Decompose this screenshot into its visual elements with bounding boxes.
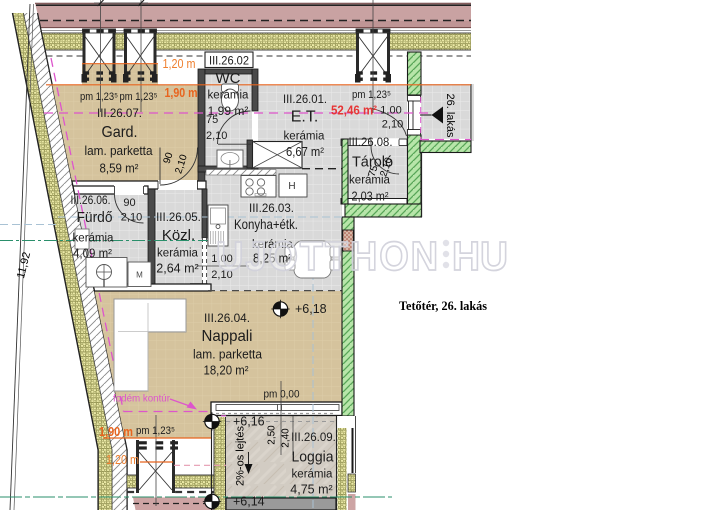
svg-text:1,90 m: 1,90 m bbox=[165, 86, 198, 100]
svg-text:III.26.02: III.26.02 bbox=[209, 56, 249, 68]
svg-text:1,20 m: 1,20 m bbox=[163, 57, 196, 71]
svg-text:lam. parketta: lam. parketta bbox=[85, 144, 153, 158]
svg-text:4,75 m²: 4,75 m² bbox=[290, 483, 332, 497]
svg-text:pm 1,23⁵: pm 1,23⁵ bbox=[136, 425, 175, 437]
svg-text:pm 1,23⁵: pm 1,23⁵ bbox=[80, 91, 118, 103]
svg-text:III.26.09.: III.26.09. bbox=[291, 432, 336, 444]
svg-text:III.26.08.: III.26.08. bbox=[349, 137, 393, 149]
svg-text:kerámia: kerámia bbox=[284, 131, 326, 143]
svg-text:fodém kontúr: fodém kontúr bbox=[113, 393, 170, 405]
svg-text:Gard.: Gard. bbox=[102, 124, 138, 141]
svg-text:III.26.01.: III.26.01. bbox=[283, 92, 327, 106]
svg-text:90: 90 bbox=[123, 197, 135, 209]
svg-text:kerámia: kerámia bbox=[73, 233, 115, 245]
svg-text:+6,14: +6,14 bbox=[233, 495, 265, 509]
svg-text:2,10: 2,10 bbox=[121, 212, 142, 224]
svg-text:1,00: 1,00 bbox=[380, 105, 401, 117]
svg-text:1,20 m: 1,20 m bbox=[106, 453, 139, 467]
svg-text:Fürdő: Fürdő bbox=[77, 209, 113, 226]
svg-text:Tetőtér, 26. lakás: Tetőtér, 26. lakás bbox=[399, 299, 487, 313]
svg-text:2,64 m²: 2,64 m² bbox=[156, 262, 198, 276]
svg-text:2%-os lejtés: 2%-os lejtés bbox=[235, 426, 247, 486]
svg-text:52,46 m²: 52,46 m² bbox=[331, 104, 377, 118]
svg-text:Nappali: Nappali bbox=[202, 328, 253, 345]
svg-text:UJOTTHON: UJOTTHON bbox=[216, 233, 440, 279]
svg-text:+6,18: +6,18 bbox=[295, 302, 327, 316]
svg-text:kerámia: kerámia bbox=[157, 248, 199, 260]
svg-text:III.26.05.: III.26.05. bbox=[156, 212, 201, 224]
svg-text:E.T.: E.T. bbox=[291, 109, 319, 126]
svg-text:2,03 m²: 2,03 m² bbox=[352, 190, 389, 204]
svg-text:8,59 m²: 8,59 m² bbox=[100, 161, 140, 176]
svg-text:2,10: 2,10 bbox=[382, 119, 403, 131]
svg-text:kerámia: kerámia bbox=[208, 90, 250, 102]
svg-text:lam. parketta: lam. parketta bbox=[193, 348, 262, 362]
svg-text:kerámia: kerámia bbox=[292, 469, 334, 481]
svg-text:2,10: 2,10 bbox=[206, 130, 227, 142]
svg-text:75: 75 bbox=[206, 114, 218, 126]
svg-text:2,40: 2,40 bbox=[281, 428, 292, 448]
svg-text:M: M bbox=[136, 271, 143, 280]
svg-text:pm 0,00: pm 0,00 bbox=[264, 389, 300, 401]
svg-text:Konyha+étk.: Konyha+étk. bbox=[234, 216, 298, 232]
svg-text:HU: HU bbox=[452, 233, 508, 279]
svg-text:1,90 m: 1,90 m bbox=[99, 425, 133, 439]
svg-text:Loggia: Loggia bbox=[292, 449, 335, 466]
svg-text:pm 1,23⁵: pm 1,23⁵ bbox=[352, 89, 391, 101]
svg-text:2,50: 2,50 bbox=[267, 425, 278, 445]
svg-text:III.26.07.: III.26.07. bbox=[97, 106, 142, 120]
svg-text:4,09 m²: 4,09 m² bbox=[73, 247, 112, 261]
svg-text:H: H bbox=[288, 181, 295, 192]
svg-text:18,20 m²: 18,20 m² bbox=[204, 363, 250, 378]
svg-text:6,67 m²: 6,67 m² bbox=[286, 145, 324, 159]
svg-text:III.26.04.: III.26.04. bbox=[204, 311, 250, 325]
svg-text:III.26.03.: III.26.03. bbox=[249, 203, 294, 215]
svg-text:pm 1,23⁵: pm 1,23⁵ bbox=[120, 91, 158, 103]
svg-text:Közl.: Közl. bbox=[162, 227, 195, 244]
svg-text:WC: WC bbox=[216, 70, 241, 87]
svg-text:26. lakás: 26. lakás bbox=[444, 93, 456, 138]
svg-text:III.26.06.: III.26.06. bbox=[71, 195, 111, 207]
